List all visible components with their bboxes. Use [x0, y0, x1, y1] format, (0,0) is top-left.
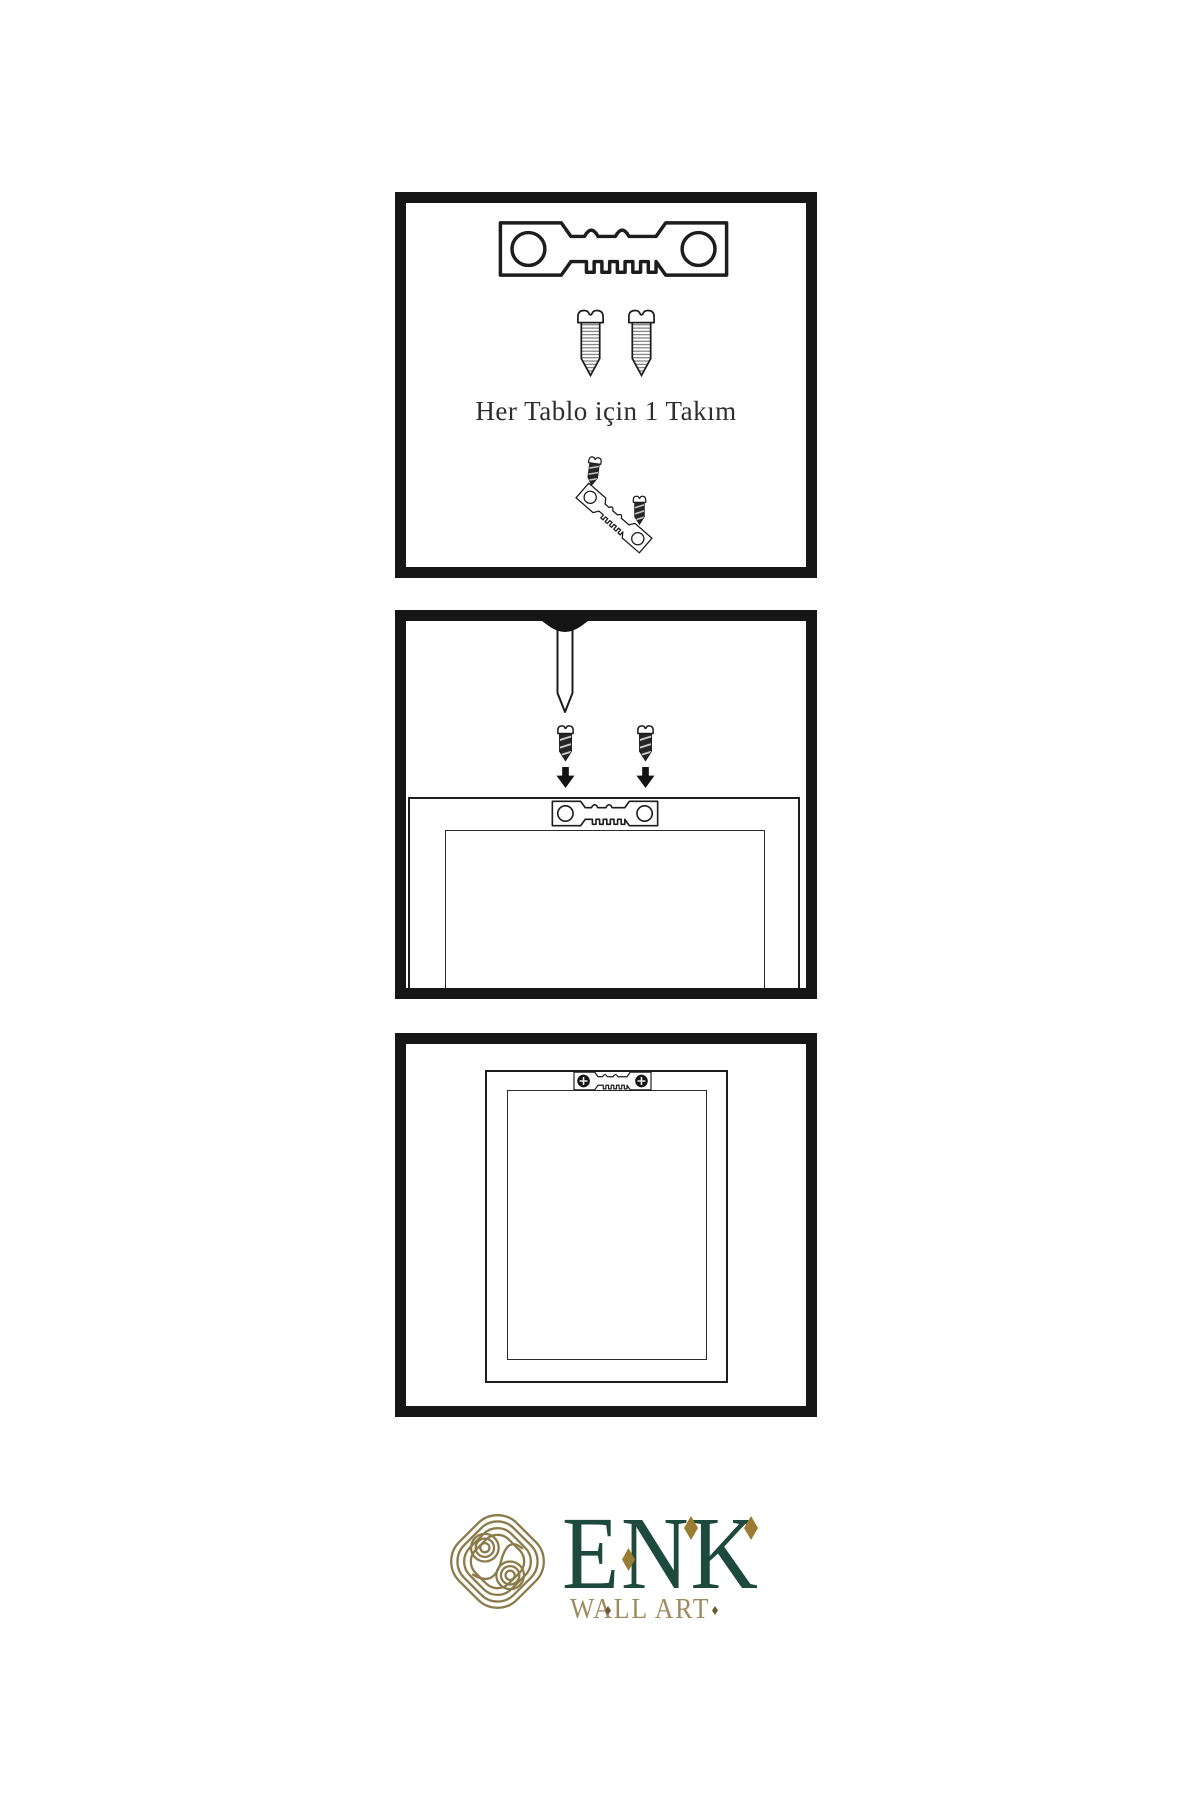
screw-dark-icon [635, 723, 656, 764]
arrow-down-icon [636, 767, 655, 788]
frame-inner-panel-outline [445, 830, 765, 999]
celtic-knot-icon [440, 1500, 555, 1623]
screw-outline-icon [575, 307, 606, 379]
sawtooth-hanger-mounted-icon [573, 1071, 652, 1091]
step-panel-hardware-kit: Her Tablo için 1 Takım [395, 192, 817, 578]
kit-caption: Her Tablo için 1 Takım [406, 396, 806, 427]
screw-dark-icon [555, 723, 576, 764]
step-panel-attach-hanger [395, 610, 817, 999]
sawtooth-hanger-icon [550, 800, 660, 827]
sawtooth-hanger-icon [497, 220, 730, 278]
brand-name: ENK [562, 1502, 760, 1606]
nail-icon [542, 621, 588, 716]
frame-inner-panel-outline [507, 1090, 707, 1360]
screw-dark-icon [631, 494, 648, 527]
instruction-sheet: Her Tablo için 1 Takım [0, 0, 1200, 1800]
step-panel-frame-back [395, 1033, 817, 1417]
screw-dark-icon [583, 454, 604, 489]
screw-outline-icon [626, 307, 657, 379]
arrow-down-icon [556, 767, 575, 788]
brand-subtitle: WALL ART [570, 1594, 710, 1626]
